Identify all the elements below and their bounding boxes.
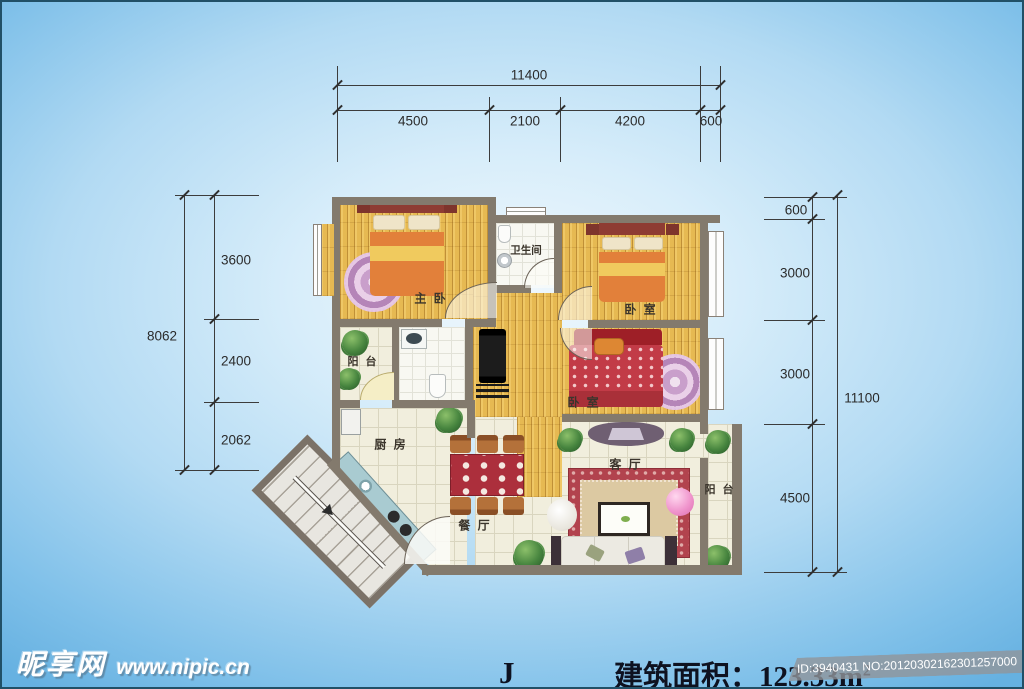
wall bbox=[700, 458, 708, 575]
bed-pillow bbox=[602, 237, 631, 250]
dim-top-total: 11400 bbox=[511, 68, 548, 83]
dim-left-total: 8062 bbox=[147, 329, 177, 344]
dim-top-seg-4200: 4200 bbox=[615, 114, 645, 129]
dining-chair bbox=[477, 497, 498, 515]
wall bbox=[332, 319, 442, 327]
dining-chair bbox=[503, 435, 524, 453]
dim-top-seg-2100: 2100 bbox=[510, 114, 540, 129]
site-name: 昵享网 bbox=[16, 649, 106, 680]
wall bbox=[554, 215, 562, 293]
window-top bbox=[506, 207, 546, 216]
label-bedroom-top: 卧 室 bbox=[624, 301, 657, 318]
wall bbox=[332, 400, 360, 408]
potted-plant bbox=[670, 428, 694, 452]
bed-headboard bbox=[599, 223, 665, 235]
nightstand bbox=[586, 224, 599, 235]
dim-right-seg-4500: 4500 bbox=[780, 491, 810, 506]
potted-plant bbox=[706, 430, 730, 454]
dim-left-seg-2400: 2400 bbox=[221, 354, 251, 369]
bed-pillow-orange bbox=[594, 338, 624, 355]
tv-console bbox=[588, 422, 664, 446]
dim-right-total: 11100 bbox=[844, 391, 880, 406]
label-bedroom-mid: 卧 室 bbox=[567, 394, 600, 411]
label-bathroom: 卫生间 bbox=[510, 243, 542, 258]
site-url: www.nipic.cn bbox=[116, 656, 249, 679]
label-balcony-right: 阳 台 bbox=[704, 481, 735, 497]
toilet bbox=[498, 225, 511, 243]
wall bbox=[489, 215, 720, 223]
potted-plant bbox=[338, 368, 360, 390]
bed-blanket bbox=[599, 252, 665, 302]
dim-left-seg-3600: 3600 bbox=[221, 253, 251, 268]
fridge bbox=[341, 409, 361, 435]
footer-plan-type: J bbox=[499, 655, 515, 689]
window-right-mid bbox=[708, 338, 724, 410]
wall bbox=[467, 408, 475, 438]
label-dining: 餐 厅 bbox=[458, 517, 491, 534]
toilet bbox=[429, 374, 446, 398]
treadmill-handles bbox=[476, 384, 509, 398]
label-living: 客 厅 bbox=[609, 456, 642, 473]
bed-pillow bbox=[373, 215, 405, 230]
table-dish bbox=[621, 516, 630, 522]
potted-plant bbox=[436, 407, 462, 433]
wall bbox=[332, 197, 496, 205]
bed-blanket bbox=[370, 232, 444, 296]
wall bbox=[562, 414, 708, 422]
dim-left-seg-2062: 2062 bbox=[221, 433, 251, 448]
dim-top-seg-4500: 4500 bbox=[398, 114, 428, 129]
bed-pillow bbox=[408, 215, 440, 230]
dim-right-seg-3000a: 3000 bbox=[780, 266, 810, 281]
dining-chair bbox=[503, 497, 524, 515]
dining-chair bbox=[450, 497, 471, 515]
label-balcony-left: 阳 台 bbox=[347, 353, 378, 369]
label-kitchen: 厨 房 bbox=[374, 436, 407, 453]
bed-blanket-stripe bbox=[370, 246, 444, 261]
potted-plant bbox=[558, 428, 582, 452]
bed-pillow bbox=[634, 237, 663, 250]
bed-blanket-stripe bbox=[599, 263, 665, 276]
wall bbox=[392, 400, 475, 408]
treadmill bbox=[479, 329, 506, 383]
dim-top-seg-600: 600 bbox=[700, 114, 723, 129]
label-master-bedroom: 主 卧 bbox=[414, 290, 447, 307]
poster-background: 11400 4500 2100 4200 600 8062 3600 2400 … bbox=[0, 0, 1024, 689]
dim-right-seg-3000b: 3000 bbox=[780, 367, 810, 382]
dining-table bbox=[450, 454, 524, 496]
wall bbox=[422, 565, 742, 575]
wall bbox=[700, 424, 708, 434]
dim-right-seg-600: 600 bbox=[785, 203, 808, 218]
wall bbox=[465, 319, 473, 408]
site-watermark: 昵享网 www.nipic.cn bbox=[16, 643, 250, 683]
bay-window-sill bbox=[320, 224, 334, 296]
nightstand bbox=[666, 224, 679, 235]
pink-ball-lamp bbox=[666, 488, 694, 516]
wall bbox=[732, 424, 742, 575]
armchair-round bbox=[547, 499, 577, 531]
tv-set bbox=[608, 428, 644, 440]
dining-chair bbox=[477, 435, 498, 453]
coffee-table bbox=[598, 502, 650, 536]
window-right-top bbox=[708, 231, 724, 317]
window-left bbox=[313, 224, 322, 296]
wall bbox=[588, 320, 708, 328]
bath-sink-basin bbox=[406, 333, 422, 344]
